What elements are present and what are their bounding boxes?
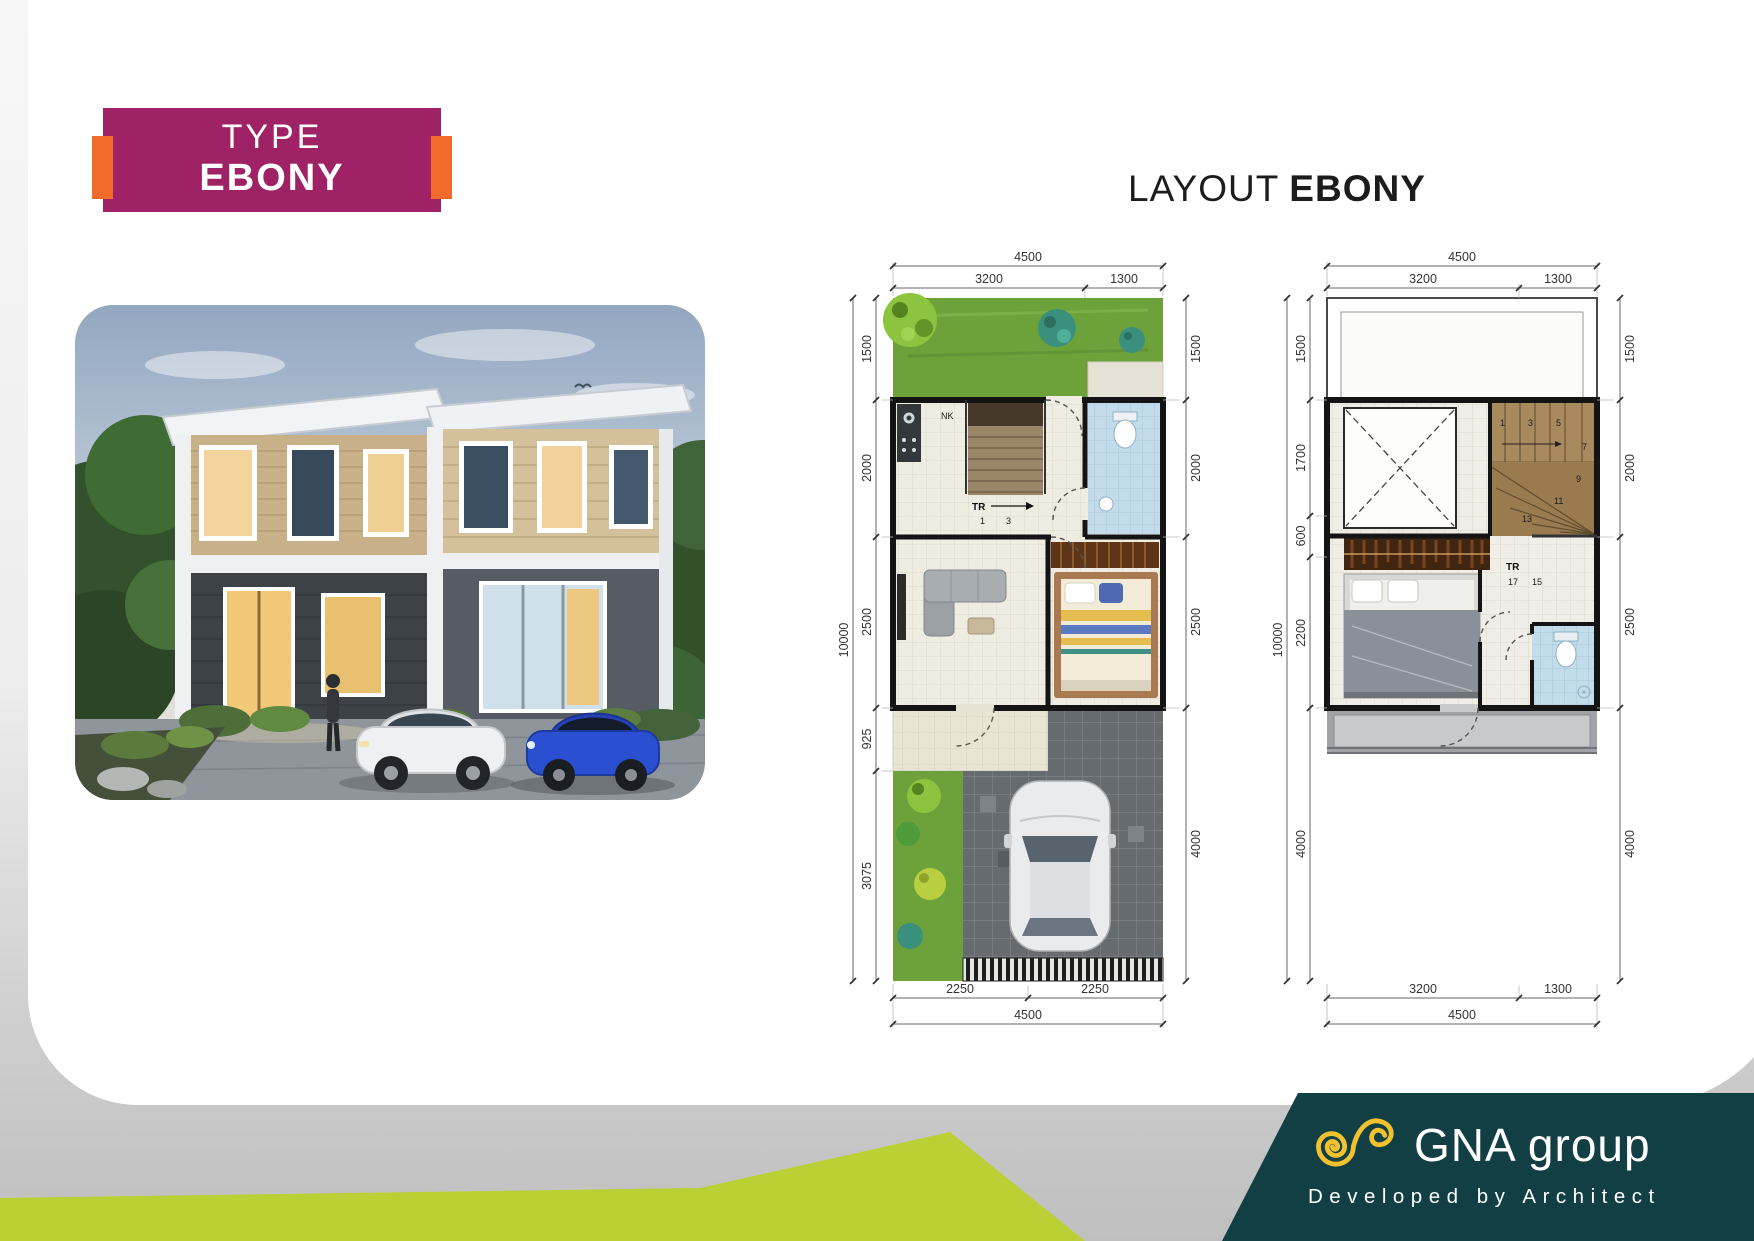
plan1-terrace xyxy=(893,708,1048,771)
bathroom xyxy=(1532,624,1597,708)
dim-label: 2200 xyxy=(1294,619,1308,647)
badge-orange-tab-right xyxy=(431,136,452,199)
floor-plan-ground: NK TR 1 3 xyxy=(758,236,1228,1036)
dim-label: 4500 xyxy=(1014,1008,1042,1022)
winding-stairs xyxy=(1490,400,1597,536)
dim-label: 1300 xyxy=(1544,982,1572,996)
plan2-interior xyxy=(1327,400,1597,754)
upper-windows-left xyxy=(199,445,409,541)
dim-label: 4500 xyxy=(1448,250,1476,264)
bed xyxy=(1054,572,1158,698)
plan1-garden-side xyxy=(893,771,963,981)
type-badge: TYPE EBONY xyxy=(103,108,441,212)
sink-icon xyxy=(1099,497,1113,511)
tree-teal-small xyxy=(1119,327,1145,353)
plan1-fence xyxy=(963,958,1163,981)
footer-tagline: Developed by Architect xyxy=(1308,1185,1661,1209)
plan1-car xyxy=(1004,781,1116,951)
dim-label: 2000 xyxy=(1623,454,1637,482)
badge-orange-tab-left xyxy=(92,136,113,199)
plan1-garden-top xyxy=(883,293,1163,401)
dim-label: 1300 xyxy=(1544,272,1572,286)
dim-label: 3075 xyxy=(860,862,874,890)
stair-level: 17 xyxy=(1508,577,1518,587)
step-number: 7 xyxy=(1582,442,1587,452)
step-number: 1 xyxy=(980,516,985,526)
rock xyxy=(147,780,187,798)
badge-type-name: EBONY xyxy=(199,157,344,201)
tree-teal xyxy=(1038,309,1076,347)
glass-wall-right xyxy=(479,581,607,713)
step-number: 9 xyxy=(1576,474,1581,484)
wardrobe xyxy=(1051,542,1159,568)
dim-label: 600 xyxy=(1294,526,1308,547)
step-number: 1 xyxy=(1500,418,1505,428)
dim-label: 4500 xyxy=(1448,1008,1476,1022)
step-number: 3 xyxy=(1006,516,1011,526)
bed xyxy=(1344,574,1480,698)
mid-slab-right xyxy=(435,553,673,569)
floor-plan-upper: 1 3 5 7 9 11 13 TR 17 15 xyxy=(1192,236,1662,1036)
wardrobe xyxy=(1344,538,1490,570)
dim-label: 1300 xyxy=(1110,272,1138,286)
layout-title: LAYOUTEBONY xyxy=(1128,168,1426,210)
step-number: 5 xyxy=(1556,418,1561,428)
glass-door-left xyxy=(223,587,295,721)
plan1-interior xyxy=(893,400,1163,708)
stairs xyxy=(968,400,1043,495)
pillar-center xyxy=(427,427,443,723)
layout-title-prefix: LAYOUT xyxy=(1128,168,1279,209)
upper-windows-right xyxy=(459,441,653,533)
tree-green xyxy=(883,293,937,347)
step-number: 11 xyxy=(1554,496,1563,506)
dim-label: 3200 xyxy=(1409,272,1437,286)
kitchen-counter xyxy=(897,404,921,462)
stair-label: TR xyxy=(1506,562,1520,573)
dim-label: 1500 xyxy=(1623,335,1637,363)
dim-label: 3200 xyxy=(1409,982,1437,996)
dim-label: 2000 xyxy=(860,454,874,482)
dim-label: 2250 xyxy=(1081,982,1109,996)
layout-title-name: EBONY xyxy=(1289,168,1426,209)
pillar-right xyxy=(659,429,673,721)
balcony xyxy=(1327,708,1597,754)
dim-label: 2500 xyxy=(1623,608,1637,636)
step-number: 13 xyxy=(1522,514,1532,524)
dim-label: 3200 xyxy=(975,272,1003,286)
footer-band: GNA group Developed by Architect xyxy=(1170,1093,1754,1241)
rock xyxy=(97,767,149,791)
gna-logo-icon xyxy=(1308,1109,1404,1181)
dim-label: 2500 xyxy=(860,608,874,636)
dim-label: 2250 xyxy=(946,982,974,996)
pillar-left xyxy=(175,435,191,725)
brochure-page: TYPE EBONY LAYOUTEBONY xyxy=(0,0,1754,1241)
house-photo xyxy=(75,305,705,800)
footer-brand: GNA group xyxy=(1414,1118,1651,1172)
stair-label: TR xyxy=(972,502,986,513)
mid-slab-left xyxy=(175,555,433,573)
photo-house-left xyxy=(163,389,447,725)
coffee-table xyxy=(968,618,994,634)
badge-type-label: TYPE xyxy=(222,119,323,156)
photo-house-right xyxy=(427,385,691,723)
dim-label: 4000 xyxy=(1623,830,1637,858)
dim-label: 10000 xyxy=(837,623,851,658)
step-number: 15 xyxy=(1532,577,1542,587)
toilet-icon xyxy=(1113,412,1137,448)
tv-unit xyxy=(897,574,906,640)
entry-label: NK xyxy=(941,411,954,421)
void-room xyxy=(1344,408,1456,528)
dim-label: 4500 xyxy=(1014,250,1042,264)
dim-label: 4000 xyxy=(1294,830,1308,858)
dim-label: 1700 xyxy=(1294,444,1308,472)
dim-label: 10000 xyxy=(1271,623,1285,658)
dim-label: 1500 xyxy=(860,335,874,363)
lower-wall-left xyxy=(183,573,427,725)
plan2-roof-band xyxy=(1327,298,1597,400)
dim-label: 925 xyxy=(860,729,874,750)
step-number: 3 xyxy=(1528,418,1533,428)
green-stripe xyxy=(0,1120,1090,1241)
dim-label: 1500 xyxy=(1294,335,1308,363)
